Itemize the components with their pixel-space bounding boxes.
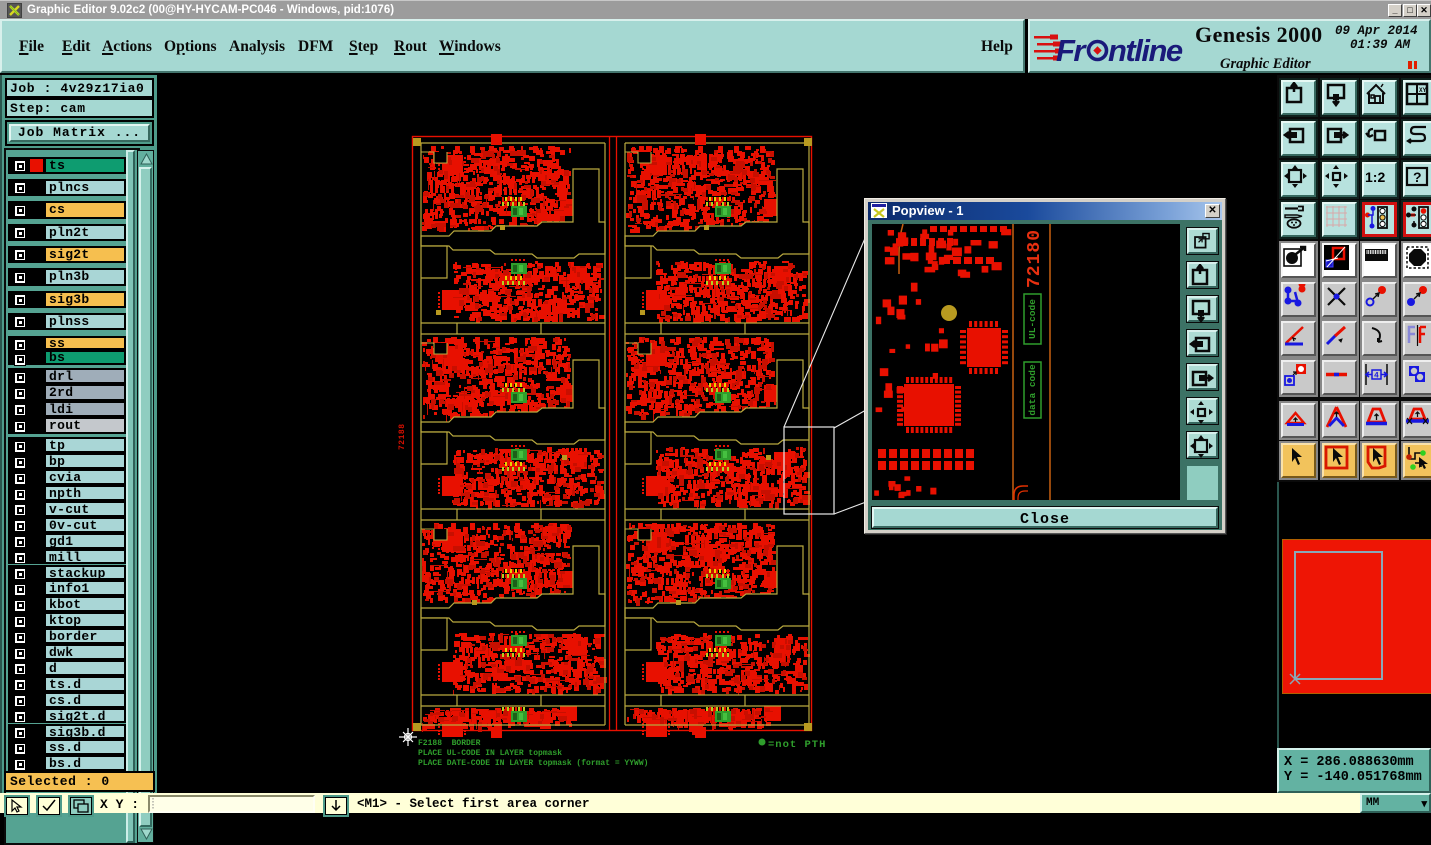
svg-text:72188: 72188	[398, 423, 407, 450]
svg-text:72180: 72180	[1025, 229, 1045, 288]
svg-text:data code: data code	[1027, 364, 1038, 416]
svg-text:XY: XY	[1419, 87, 1427, 94]
svg-text:F2188 BORDER: F2188 BORDER	[418, 739, 481, 748]
svg-text:UL-code: UL-code	[1027, 299, 1038, 339]
svg-text:PLACE UL-CODE IN LAYER topmask: PLACE UL-CODE IN LAYER topmask	[418, 749, 562, 758]
svg-text:?: ?	[1413, 169, 1422, 185]
svg-text:=not PTH: =not PTH	[768, 739, 826, 751]
svg-text:1:2: 1:2	[1365, 169, 1385, 185]
svg-text:Fr: Fr	[1056, 33, 1087, 68]
svg-text:PLACE DATE-CODE IN LAYER topma: PLACE DATE-CODE IN LAYER topmask (format…	[418, 759, 648, 768]
svg-text:4: 4	[1374, 372, 1379, 381]
svg-text:ntline: ntline	[1108, 33, 1183, 68]
